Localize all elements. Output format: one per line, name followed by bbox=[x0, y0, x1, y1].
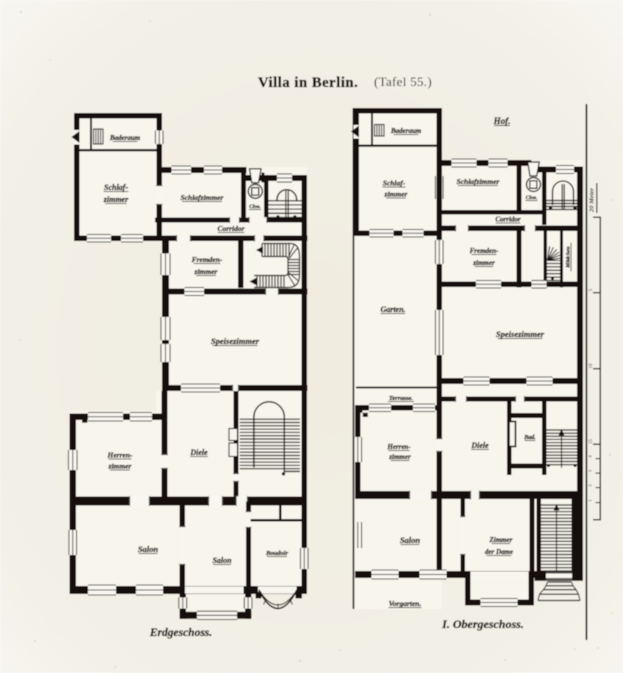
svg-text:zimmer: zimmer bbox=[472, 259, 495, 267]
svg-text:Schlafzimmer: Schlafzimmer bbox=[181, 193, 224, 202]
svg-text:Baderaum: Baderaum bbox=[109, 134, 141, 142]
svg-text:Fremden-: Fremden- bbox=[470, 247, 499, 255]
svg-text:zimmer: zimmer bbox=[384, 190, 408, 199]
svg-text:Schlaf-: Schlaf- bbox=[383, 179, 406, 188]
svg-text:2: 2 bbox=[588, 484, 593, 486]
svg-text:zimmer: zimmer bbox=[103, 195, 129, 204]
svg-text:Clos.: Clos. bbox=[526, 195, 537, 201]
svg-text:Clos.: Clos. bbox=[249, 204, 260, 210]
svg-text:Terrasse.: Terrasse. bbox=[389, 395, 414, 402]
svg-text:Schlafzimmer: Schlafzimmer bbox=[457, 177, 500, 186]
svg-text:Baderaum: Baderaum bbox=[390, 127, 422, 135]
svg-text:zimmer: zimmer bbox=[194, 267, 218, 276]
svg-text:Zimmer: Zimmer bbox=[489, 536, 513, 544]
svg-text:zimmer: zimmer bbox=[108, 462, 132, 471]
svg-text:Diele: Diele bbox=[189, 448, 208, 457]
svg-text:Villa in Berlin.: Villa in Berlin. bbox=[258, 75, 358, 91]
svg-text:(Tafel 55.): (Tafel 55.) bbox=[374, 74, 432, 89]
svg-text:Fremden-: Fremden- bbox=[192, 255, 223, 264]
svg-text:20 Meter: 20 Meter bbox=[589, 188, 596, 213]
svg-text:Salon: Salon bbox=[400, 535, 421, 545]
svg-text:Vorgarten.: Vorgarten. bbox=[389, 599, 422, 608]
svg-text:10: 10 bbox=[589, 363, 594, 369]
svg-text:Salon: Salon bbox=[138, 544, 159, 554]
svg-text:15: 15 bbox=[589, 439, 594, 445]
svg-text:Diele: Diele bbox=[470, 441, 489, 450]
svg-text:Garten.: Garten. bbox=[380, 305, 405, 314]
svg-text:3: 3 bbox=[588, 470, 593, 472]
svg-text:I. Obergeschoss.: I. Obergeschoss. bbox=[441, 617, 524, 631]
svg-text:Erdgeschoss.: Erdgeschoss. bbox=[149, 627, 212, 639]
svg-text:Boudoir: Boudoir bbox=[265, 550, 289, 557]
svg-text:Schlaf-: Schlaf- bbox=[104, 183, 128, 192]
svg-text:Mädchen: Mädchen bbox=[566, 246, 572, 268]
svg-text:der Dame: der Dame bbox=[485, 548, 513, 556]
svg-text:zimmer: zimmer bbox=[388, 453, 411, 461]
svg-text:Hof.: Hof. bbox=[493, 116, 511, 126]
svg-text:Speisezimmer: Speisezimmer bbox=[211, 336, 260, 346]
svg-text:Speisezimmer: Speisezimmer bbox=[496, 329, 545, 339]
svg-text:Corridor: Corridor bbox=[217, 224, 244, 233]
svg-text:Herren-: Herren- bbox=[386, 443, 411, 451]
svg-text:Herren-: Herren- bbox=[107, 451, 134, 460]
svg-text:Bad.: Bad. bbox=[523, 435, 536, 441]
svg-text:Corridor: Corridor bbox=[495, 216, 521, 224]
svg-text:Salon: Salon bbox=[212, 556, 232, 565]
svg-text:1: 1 bbox=[588, 499, 593, 501]
